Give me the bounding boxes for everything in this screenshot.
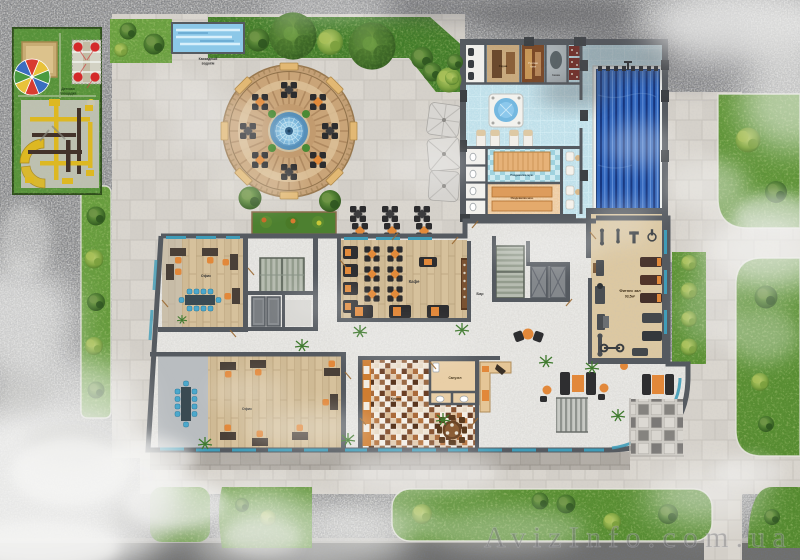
svg-text:Кухня: Кухня	[391, 397, 402, 401]
svg-text:Каскадный: Каскадный	[199, 57, 218, 61]
svg-text:93,5м²: 93,5м²	[625, 294, 636, 298]
svg-text:баня: баня	[530, 64, 536, 68]
svg-text:Раздевалка жен.: Раздевалка жен.	[511, 196, 534, 200]
svg-text:водоём: водоём	[202, 62, 215, 66]
svg-text:Хамам: Хамам	[552, 73, 560, 77]
svg-text:Детская: Детская	[61, 87, 74, 91]
svg-text:площадка: площадка	[60, 91, 77, 95]
svg-text:Бар: Бар	[476, 292, 484, 296]
svg-text:Раздевалка муж.: Раздевалка муж.	[510, 173, 533, 177]
svg-text:Санузел: Санузел	[448, 376, 461, 380]
svg-text:Фитнес зал: Фитнес зал	[619, 289, 641, 293]
svg-text:Офис: Офис	[201, 274, 211, 278]
svg-text:Кафе: Кафе	[409, 279, 421, 284]
svg-text:Русская: Русская	[528, 61, 538, 65]
svg-text:AvizInfo.com.ua: AvizInfo.com.ua	[484, 521, 793, 554]
svg-text:Сауна: Сауна	[499, 64, 508, 68]
